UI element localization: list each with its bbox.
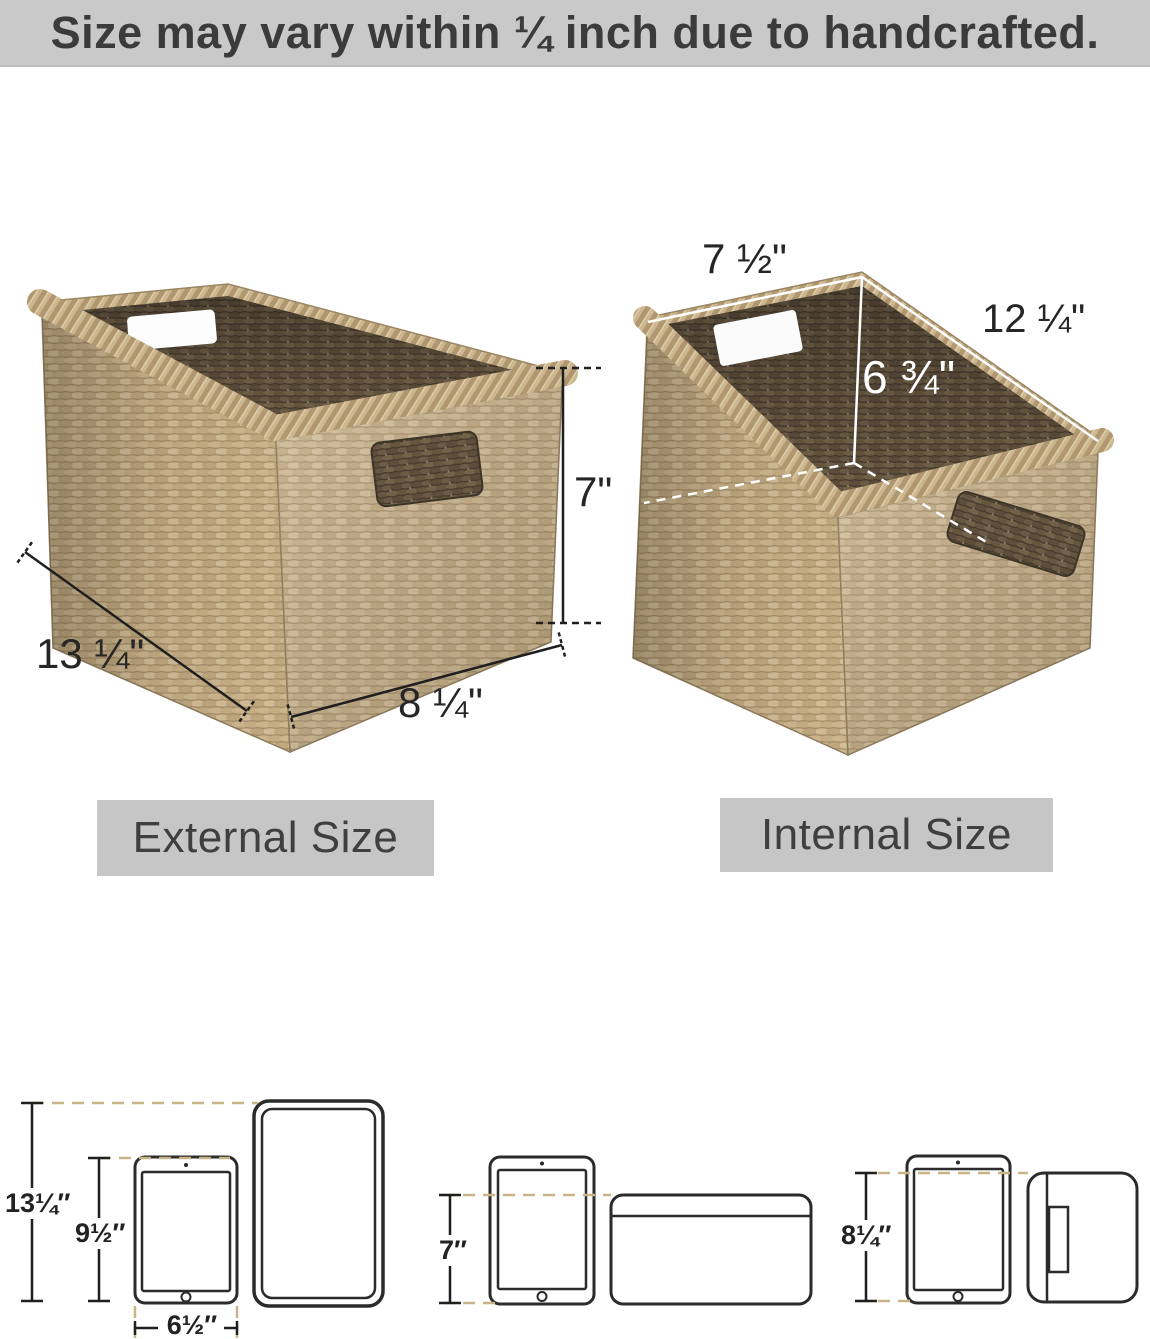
external-length-label: 13 ¼" [36, 630, 144, 678]
internal-width-label: 7 ½" [702, 235, 787, 283]
comparison-tablet-height-label: 9½″ [72, 1218, 128, 1249]
internal-basket [633, 272, 1102, 755]
tablet-camera-icon [540, 1162, 544, 1166]
internal-height-label: 6 ¾" [862, 350, 955, 404]
comparison-basket-height-label: 13¼″ [2, 1188, 73, 1219]
external-size-tag-label: External Size [133, 813, 399, 863]
comparison-tablet-width-label: 6½″ [160, 1310, 224, 1339]
external-basket [40, 284, 565, 752]
internal-size-tag: Internal Size [720, 798, 1053, 872]
basket-front-outline [611, 1195, 811, 1304]
basket-side-outline [1028, 1173, 1137, 1302]
comparison-group-right [855, 1156, 1137, 1303]
product-size-infographic: Size may vary within ¼ inch due to handc… [0, 0, 1150, 1339]
external-width-label: 8 ¼" [398, 679, 483, 727]
tablet-camera-icon [956, 1161, 960, 1165]
front-handle-cutout [370, 431, 483, 507]
comparison-group-middle [439, 1157, 811, 1304]
comparison-side-height-label: 8¼″ [838, 1220, 894, 1251]
internal-size-tag-label: Internal Size [761, 810, 1012, 860]
external-height-label: 7" [574, 468, 612, 516]
internal-length-label: 12 ¼" [982, 297, 1085, 342]
baskets-illustration [0, 0, 1150, 1080]
side-handle-outline [1049, 1207, 1068, 1272]
tablet-camera-icon [184, 1163, 188, 1167]
size-comparison-diagram [0, 1080, 1150, 1339]
external-size-tag: External Size [97, 800, 434, 876]
comparison-front-height-label: 7″ [436, 1235, 470, 1266]
